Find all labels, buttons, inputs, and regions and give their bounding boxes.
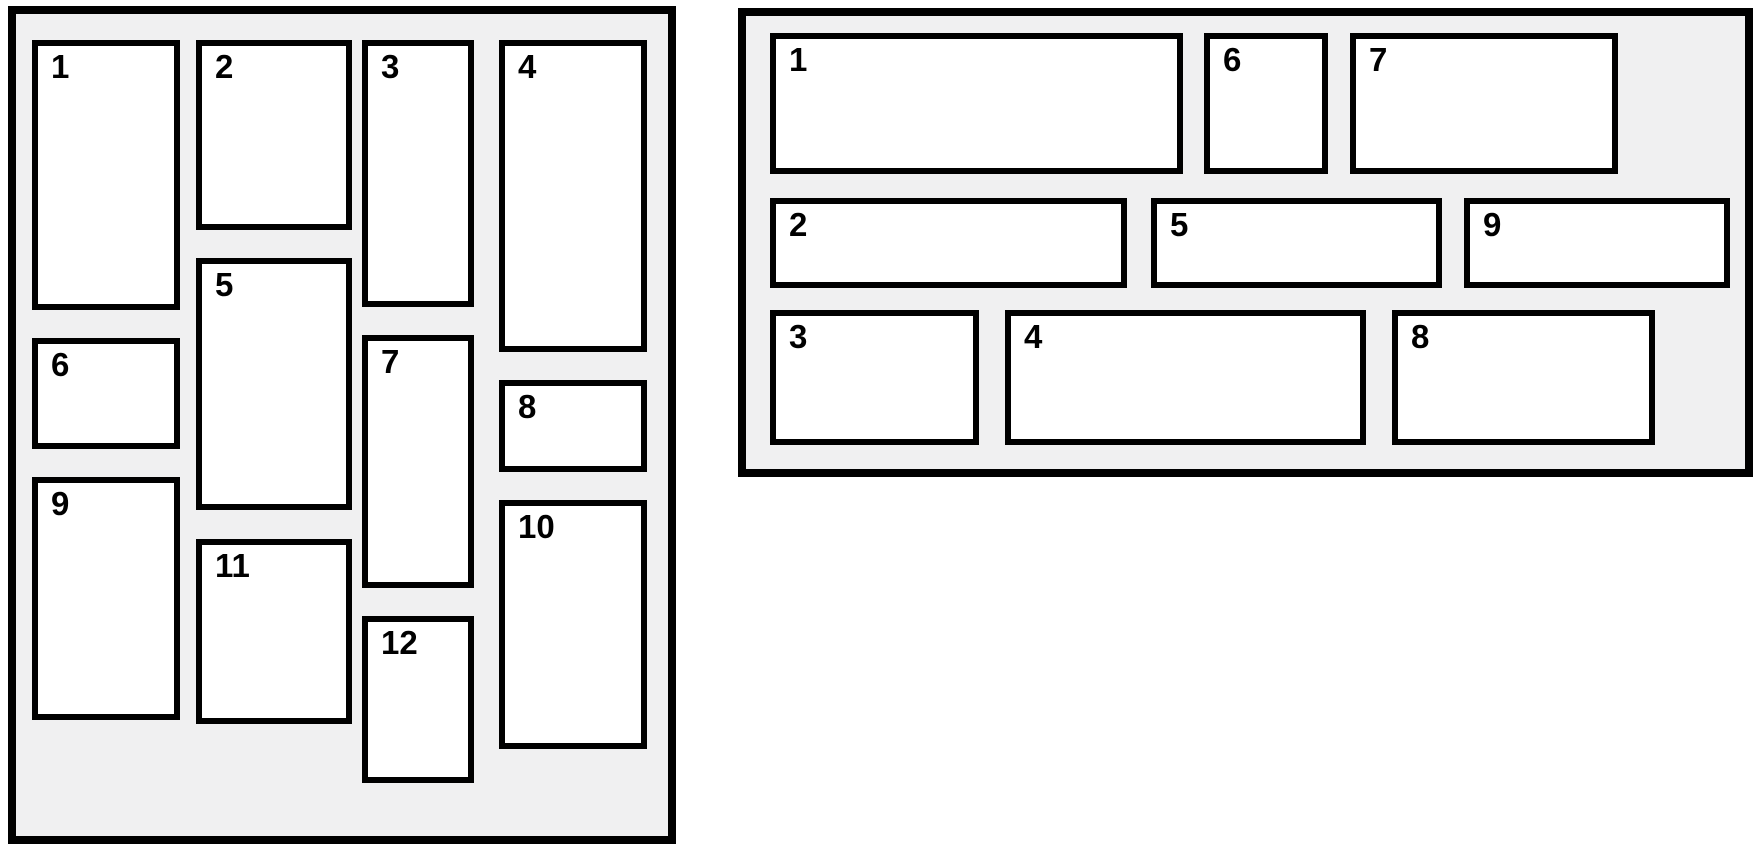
box-number-label: 5 xyxy=(202,264,346,303)
row-masonry-panel-box-7: 7 xyxy=(1350,33,1618,174)
box-number-label: 12 xyxy=(368,622,468,661)
column-masonry-panel-box-10: 10 xyxy=(499,500,647,749)
row-masonry-panel-box-9: 9 xyxy=(1464,198,1730,288)
row-masonry-panel-box-8: 8 xyxy=(1392,310,1655,445)
column-masonry-panel-box-4: 4 xyxy=(499,40,647,352)
column-masonry-panel: 123456789101112 xyxy=(8,6,676,844)
box-number-label: 10 xyxy=(505,506,641,545)
box-number-label: 11 xyxy=(202,545,346,584)
column-masonry-panel-box-2: 2 xyxy=(196,40,352,230)
box-number-label: 4 xyxy=(505,46,641,85)
box-number-label: 5 xyxy=(1157,204,1436,243)
box-number-label: 9 xyxy=(38,483,174,522)
row-masonry-panel-box-2: 2 xyxy=(770,198,1127,288)
box-number-label: 6 xyxy=(1210,39,1322,78)
masonry-layouts-figure: 123456789101112 123456789 xyxy=(0,0,1755,852)
row-masonry-panel: 123456789 xyxy=(738,8,1753,477)
box-number-label: 9 xyxy=(1470,204,1724,243)
box-number-label: 8 xyxy=(505,386,641,425)
column-masonry-panel-box-12: 12 xyxy=(362,616,474,783)
box-number-label: 6 xyxy=(38,344,174,383)
row-masonry-panel-box-6: 6 xyxy=(1204,33,1328,174)
row-masonry-panel-box-3: 3 xyxy=(770,310,979,445)
box-number-label: 2 xyxy=(202,46,346,85)
row-masonry-panel-box-4: 4 xyxy=(1005,310,1366,445)
row-masonry-panel-box-5: 5 xyxy=(1151,198,1442,288)
column-masonry-panel-box-3: 3 xyxy=(362,40,474,307)
box-number-label: 1 xyxy=(38,46,174,85)
row-masonry-panel-box-1: 1 xyxy=(770,33,1183,174)
column-masonry-panel-box-5: 5 xyxy=(196,258,352,510)
box-number-label: 1 xyxy=(776,39,1177,78)
column-masonry-panel-box-1: 1 xyxy=(32,40,180,310)
column-masonry-panel-box-9: 9 xyxy=(32,477,180,720)
box-number-label: 7 xyxy=(1356,39,1612,78)
column-masonry-panel-box-8: 8 xyxy=(499,380,647,472)
column-masonry-panel-box-7: 7 xyxy=(362,335,474,588)
box-number-label: 3 xyxy=(776,316,973,355)
box-number-label: 4 xyxy=(1011,316,1360,355)
column-masonry-panel-box-11: 11 xyxy=(196,539,352,724)
column-masonry-panel-box-6: 6 xyxy=(32,338,180,449)
box-number-label: 7 xyxy=(368,341,468,380)
box-number-label: 8 xyxy=(1398,316,1649,355)
box-number-label: 2 xyxy=(776,204,1121,243)
box-number-label: 3 xyxy=(368,46,468,85)
